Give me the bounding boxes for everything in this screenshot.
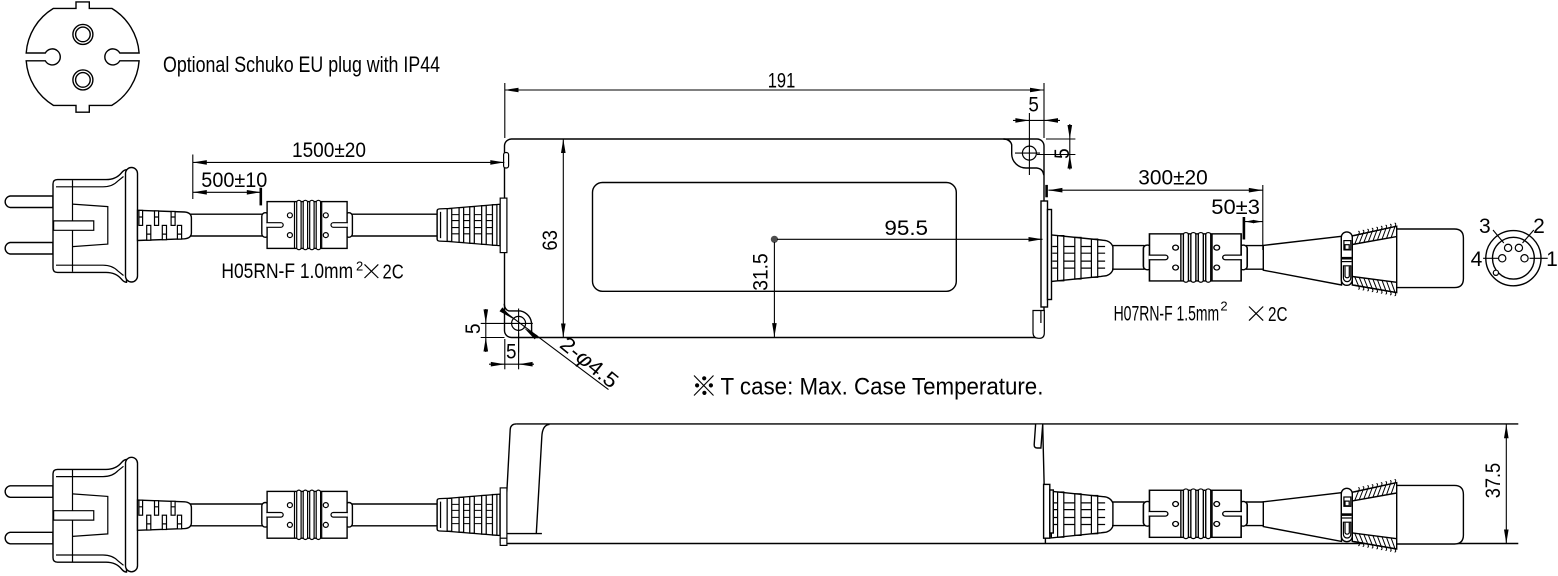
- svg-text:5: 5: [462, 324, 485, 335]
- svg-text:5: 5: [1051, 148, 1074, 159]
- svg-text:2: 2: [1220, 298, 1227, 313]
- svg-text:50±3: 50±3: [1211, 196, 1260, 219]
- svg-text:63: 63: [539, 230, 562, 251]
- svg-text:191: 191: [768, 70, 796, 93]
- svg-text:H05RN-F 1.0mm: H05RN-F 1.0mm: [221, 260, 353, 283]
- svg-text:37.5: 37.5: [1482, 463, 1505, 498]
- svg-text:2C: 2C: [383, 261, 404, 283]
- svg-text:2C: 2C: [1268, 304, 1288, 326]
- svg-text:T case: Max. Case Temperature.: T case: Max. Case Temperature.: [721, 373, 1044, 400]
- svg-text:2: 2: [356, 259, 363, 274]
- svg-text:31.5: 31.5: [750, 253, 773, 291]
- svg-text:1: 1: [1546, 248, 1558, 271]
- svg-text:1500±20: 1500±20: [292, 139, 366, 162]
- svg-text:500±10: 500±10: [201, 169, 267, 192]
- svg-text:5: 5: [506, 340, 517, 363]
- svg-text:Optional Schuko EU plug with I: Optional Schuko EU plug with IP44: [163, 52, 440, 77]
- svg-text:3: 3: [1479, 215, 1491, 238]
- svg-text:300±20: 300±20: [1138, 167, 1208, 190]
- svg-text:H07RN-F 1.5mm: H07RN-F 1.5mm: [1114, 303, 1220, 326]
- svg-text:4: 4: [1471, 248, 1483, 271]
- svg-text:2-φ4.5: 2-φ4.5: [555, 333, 622, 394]
- svg-text:2: 2: [1533, 215, 1545, 238]
- svg-text:5: 5: [1028, 93, 1039, 116]
- svg-text:95.5: 95.5: [884, 217, 928, 240]
